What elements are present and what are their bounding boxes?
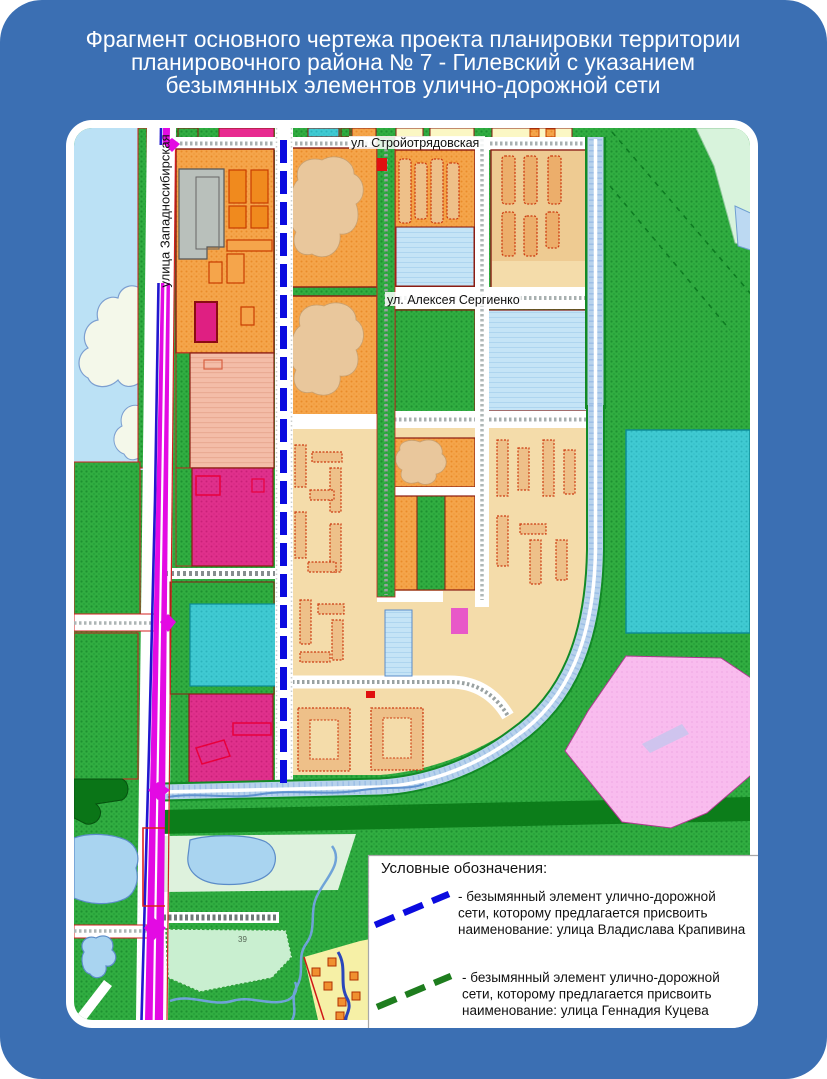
svg-text:безымянных элементов улично-до: безымянных элементов улично-дорожной сет… bbox=[166, 72, 661, 98]
svg-text:39: 39 bbox=[238, 935, 247, 944]
svg-text:ул. Стройотрядовская: ул. Стройотрядовская bbox=[351, 136, 479, 150]
svg-text:наименование: улица Геннадия К: наименование: улица Геннадия Куцева bbox=[462, 1003, 709, 1018]
svg-text:сети, которому предлагается пр: сети, которому предлагается присвоить bbox=[462, 987, 712, 1002]
svg-text:улица Западносибирская: улица Западносибирская bbox=[158, 134, 173, 287]
svg-text:ул. Алексея Сергиенко: ул. Алексея Сергиенко bbox=[387, 293, 520, 307]
svg-text:- безымянный элемент улично-д: - безымянный элемент улично-дорожной bbox=[462, 970, 720, 985]
svg-text:наименование: улица Владислава: наименование: улица Владислава Крапивина bbox=[458, 922, 746, 937]
svg-text:Условные обозначения:: Условные обозначения: bbox=[381, 860, 547, 877]
svg-text:- безымянный элемент улично-д: - безымянный элемент улично-дорожной bbox=[458, 889, 716, 904]
svg-text:сети, которому предлагается пр: сети, которому предлагается присвоить bbox=[458, 906, 708, 921]
